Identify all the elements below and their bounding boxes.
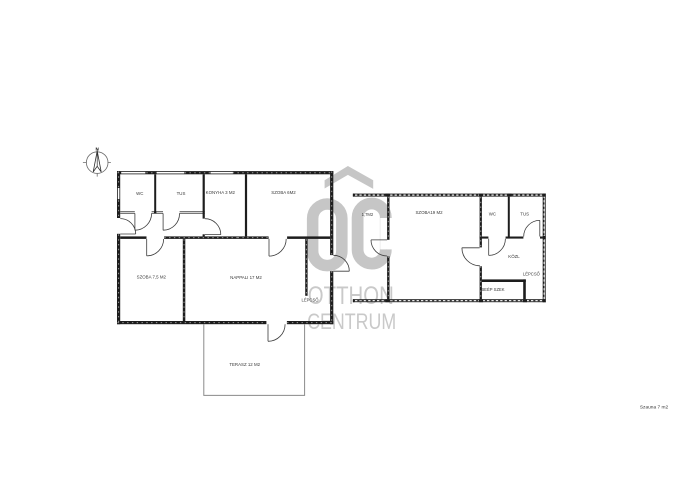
- svg-text:Szauna 7 m2: Szauna 7 m2: [640, 405, 669, 411]
- svg-text:BEÉP SZEK: BEÉP SZEK: [481, 287, 504, 292]
- svg-text:SZOBA 7,5 M2: SZOBA 7,5 M2: [137, 274, 167, 279]
- svg-text:OTTHON: OTTHON: [308, 282, 394, 310]
- svg-text:TUS: TUS: [520, 212, 529, 217]
- svg-text:1,7M2: 1,7M2: [362, 212, 374, 217]
- svg-text:WC: WC: [489, 212, 496, 217]
- svg-text:LÉPCSŐ: LÉPCSŐ: [302, 298, 320, 303]
- svg-text:SZOBA19 M2: SZOBA19 M2: [415, 210, 443, 215]
- svg-text:NAPPALI 17 M2: NAPPALI 17 M2: [230, 275, 262, 280]
- svg-text:WC: WC: [136, 191, 143, 196]
- svg-text:SZOBA 6M2: SZOBA 6M2: [271, 190, 296, 195]
- svg-text:KÖZL: KÖZL: [508, 254, 520, 259]
- svg-text:KONYHA 3 M2: KONYHA 3 M2: [206, 190, 236, 195]
- svg-text:TUS: TUS: [177, 191, 186, 196]
- svg-text:TERASZ 12 M2: TERASZ 12 M2: [229, 362, 260, 367]
- svg-text:LÉPCSŐ: LÉPCSŐ: [523, 272, 541, 277]
